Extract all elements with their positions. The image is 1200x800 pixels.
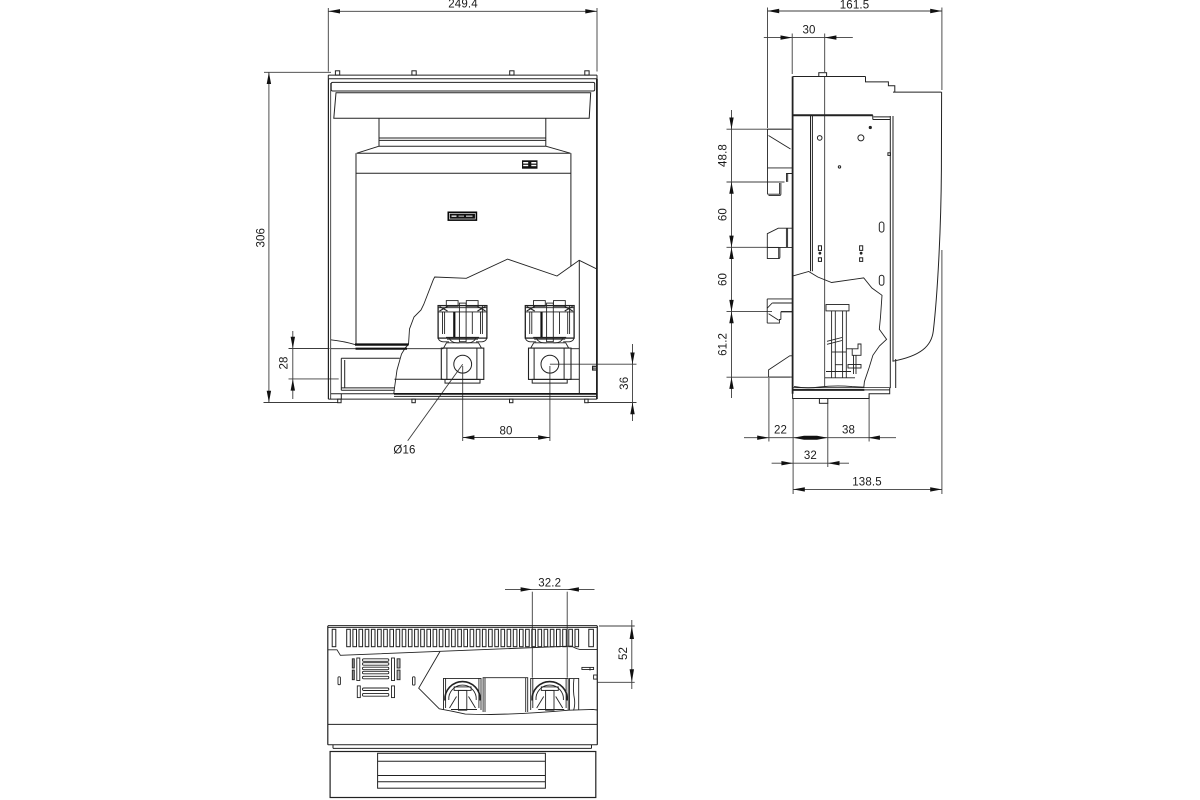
svg-text:80: 80	[499, 425, 512, 437]
svg-text:249.4: 249.4	[448, 0, 478, 11]
svg-text:22: 22	[774, 425, 787, 437]
svg-text:Ø16: Ø16	[393, 445, 415, 457]
svg-text:60: 60	[717, 208, 729, 221]
svg-text:306: 306	[256, 228, 268, 248]
svg-text:32: 32	[804, 450, 817, 462]
svg-text:28: 28	[279, 356, 291, 369]
svg-text:60: 60	[717, 273, 729, 286]
svg-text:38: 38	[842, 425, 855, 437]
svg-text:30: 30	[802, 24, 815, 36]
svg-text:36: 36	[619, 377, 631, 390]
svg-text:61.2: 61.2	[717, 333, 729, 356]
svg-text:161.5: 161.5	[840, 0, 870, 12]
svg-text:138.5: 138.5	[852, 477, 882, 489]
svg-text:32.2: 32.2	[538, 577, 561, 589]
svg-text:52: 52	[618, 647, 630, 660]
svg-text:48.8: 48.8	[717, 144, 729, 167]
